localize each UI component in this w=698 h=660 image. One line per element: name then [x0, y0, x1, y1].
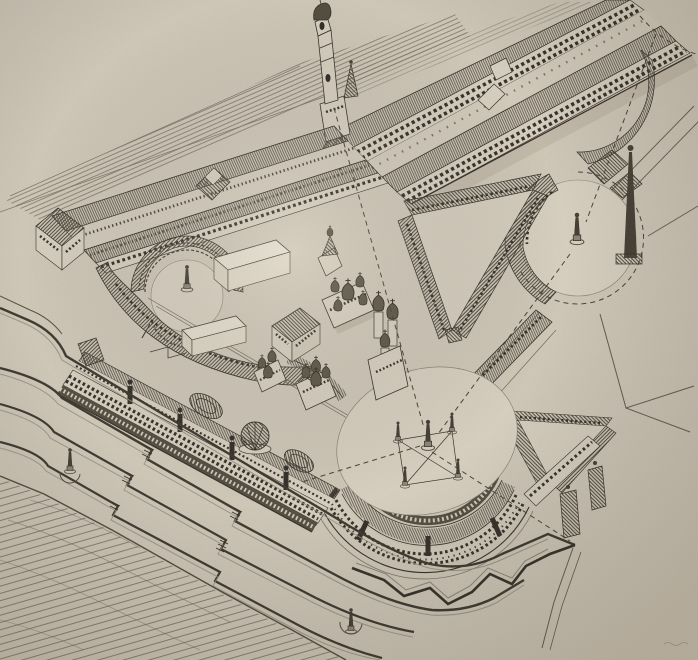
engraving-plate: [0, 0, 698, 660]
engraving-canvas: [0, 0, 698, 660]
vignette: [0, 0, 698, 660]
